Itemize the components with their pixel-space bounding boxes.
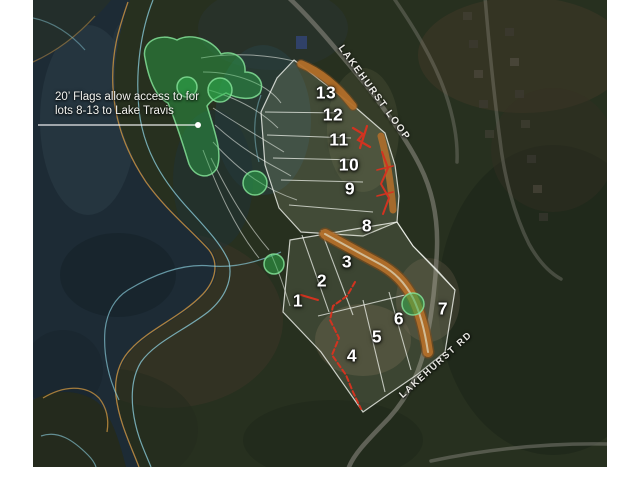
annotation-line-2: lots 8-13 to Lake Travis: [55, 104, 199, 118]
access-flag-circle: [208, 78, 232, 102]
blue-roof: [296, 36, 307, 49]
map-graphics: [33, 0, 607, 467]
aerial-map: 1 2 3 4 5 6 7 8 9 10 11 12 13 LAKEHURST …: [33, 0, 607, 467]
annotation-point: [195, 122, 201, 128]
annotation-line-1: 20’ Flags allow access to for: [55, 90, 199, 104]
flag-access-annotation: 20’ Flags allow access to for lots 8-13 …: [55, 90, 199, 118]
access-flag-circle: [402, 293, 424, 315]
access-flag-circle: [264, 254, 284, 274]
listing-photo-page: 1 2 3 4 5 6 7 8 9 10 11 12 13 LAKEHURST …: [0, 0, 640, 480]
access-flag-circle: [243, 171, 267, 195]
